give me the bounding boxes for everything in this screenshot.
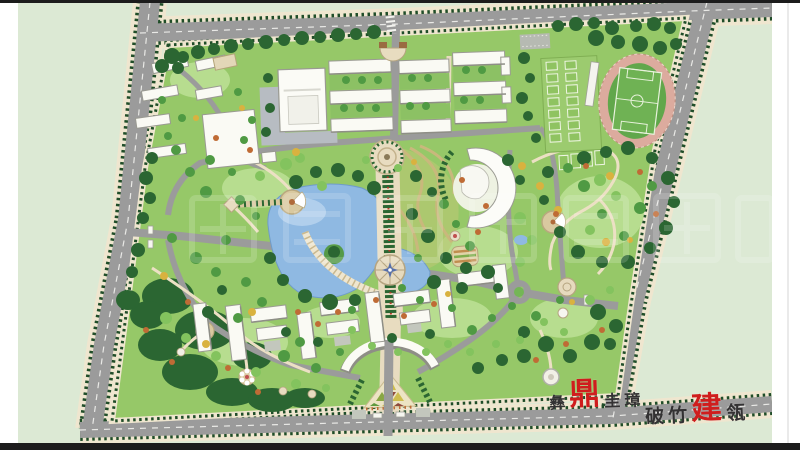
parking-lot <box>520 33 551 50</box>
south-gate <box>373 413 382 418</box>
masterplan-canvas: 彝 鼎 圭 璋 破 竹 建 瓴 <box>0 0 800 450</box>
fountain-node <box>558 308 568 318</box>
seal-inscription-line2: 破 竹 建 瓴 <box>644 392 745 427</box>
site-plan-drawing <box>0 0 800 450</box>
seal-char: 圭 <box>604 393 621 410</box>
dormitory-rows <box>329 51 513 136</box>
small-pond <box>514 235 528 245</box>
seal-char: 竹 <box>668 406 688 426</box>
seal-char: 彝 <box>549 395 566 412</box>
south-entrance-road <box>388 340 389 436</box>
north-axis-road <box>394 28 396 140</box>
soccer-field <box>612 68 661 135</box>
roundabout <box>510 283 528 301</box>
flower-node <box>450 231 460 241</box>
ring-node-plaza <box>558 278 576 296</box>
west-gate <box>148 226 153 234</box>
seal-char-red: 鼎 <box>568 379 600 411</box>
seal-char: 璋 <box>624 392 641 409</box>
seal-char: 瓴 <box>726 404 746 424</box>
seal-inscription-line1: 彝 鼎 圭 璋 <box>548 377 640 411</box>
seal-char: 破 <box>645 407 665 427</box>
seal-char-red: 建 <box>690 393 722 425</box>
